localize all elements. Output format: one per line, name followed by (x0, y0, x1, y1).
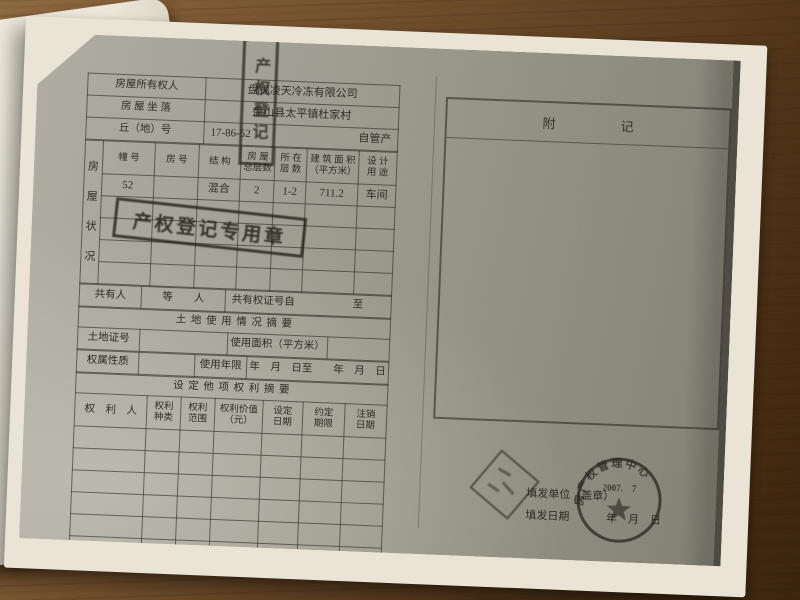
col-right-holder: 权 利 人 (74, 393, 147, 429)
svg-text:房产权管理中心: 房产权管理中心 (572, 454, 654, 509)
col-set-date: 设定 日期 (262, 400, 303, 435)
other-rights-table: 设 定 他 项 权 利 摘 要 权 利 人 权利 种类 权利 范围 权利价值 （… (68, 372, 388, 570)
photocopy-area: 房屋所有权人 盘锦凌天冷冻有限公司 房 屋 坐 落 盘山县太平镇杜家村 丘（地）… (19, 33, 741, 567)
designed-use-value: 车间 (357, 184, 396, 208)
coowner-cert-to: 至 (352, 300, 363, 312)
empty-cell (341, 481, 384, 505)
col-floor-located: 所 在 层 数 (274, 148, 307, 182)
use-area-value (327, 337, 390, 361)
certificate-page: 房屋所有权人 盘锦凌天冷冻有限公司 房 屋 坐 落 盘山县太平镇杜家村 丘（地）… (4, 16, 768, 597)
page-fold-line (418, 76, 437, 528)
col-right-value: 权利价值 （元） (214, 398, 263, 433)
land-cert-label: 土地证号 (77, 327, 140, 351)
empty-cell (303, 248, 356, 272)
stamp-stroke (502, 481, 515, 495)
empty-cell (354, 272, 393, 296)
empty-cell (258, 499, 299, 523)
empty-cell (69, 536, 142, 561)
empty-cell (143, 495, 178, 518)
empty-cell (212, 453, 261, 477)
empty-cell (211, 475, 260, 499)
total-floors-value: 2 (239, 179, 274, 202)
empty-cell (300, 457, 343, 481)
room-no-value (153, 176, 198, 200)
empty-cell (150, 264, 195, 288)
empty-cell (98, 262, 151, 286)
ownership-nature-label: 权属性质 (76, 350, 139, 374)
col-designed-use: 设 计 用 途 (358, 151, 397, 185)
coowner-label: 共有人 (79, 284, 142, 308)
empty-cell (175, 540, 210, 563)
empty-cell (339, 525, 382, 549)
vertical-seal-glyphs: 产权登记 (245, 57, 273, 146)
empty-cell (178, 452, 213, 475)
empty-cell (210, 519, 259, 543)
building-no-value: 52 (101, 174, 154, 198)
issue-date-label: 填发日期 (525, 509, 569, 523)
empty-cell (71, 470, 144, 495)
ownership-nature-value (138, 352, 195, 376)
empty-cell (70, 514, 143, 539)
empty-cell (340, 503, 383, 527)
coowner-count-cell: 等 人 (141, 286, 226, 311)
empty-cell (339, 547, 382, 571)
empty-cell (301, 435, 344, 459)
empty-cell (343, 437, 386, 461)
empty-cell (144, 451, 179, 474)
empty-cell (143, 473, 178, 496)
col-structure: 结 构 (198, 145, 241, 180)
empty-cell (99, 240, 152, 264)
seal-star-icon (606, 497, 632, 521)
empty-cell (177, 474, 212, 497)
empty-cell (356, 206, 395, 230)
empty-cell (176, 518, 211, 541)
empty-cell (73, 426, 146, 451)
empty-cell (213, 431, 262, 455)
vertical-seal-stamp: 产权登记 (238, 37, 279, 166)
empty-cell (71, 492, 144, 517)
seal-arc-text: 房产权管理中心 (572, 454, 654, 509)
col-cancel-date: 注销 日期 (344, 404, 387, 439)
empty-cell (270, 269, 303, 292)
use-term-label: 使用年限 (194, 355, 247, 379)
stamp-stroke (487, 483, 499, 493)
empty-cell (194, 265, 237, 289)
empty-cell (141, 539, 176, 562)
coowner-cert-from: 共有权证号自 (231, 295, 294, 310)
empty-cell (259, 477, 300, 501)
empty-cell (145, 429, 180, 452)
property-nature-note: 自管产 (358, 133, 391, 147)
empty-cell (142, 517, 177, 540)
col-right-type: 权利 种类 (146, 396, 181, 430)
appendix-box: 附 记 (433, 97, 732, 430)
empty-cell (72, 448, 145, 473)
empty-cell (355, 228, 394, 252)
empty-cell (299, 479, 342, 503)
col-building-no: 幢 号 (102, 141, 155, 176)
empty-cell (261, 433, 302, 457)
seal-date-text: 2007. 7 (602, 483, 637, 494)
empty-cell (210, 497, 259, 521)
col-right-scope: 权利 范围 (180, 397, 215, 431)
empty-cell (176, 496, 211, 519)
empty-cell (298, 501, 341, 525)
empty-cell (209, 541, 258, 565)
land-cert-value (139, 329, 228, 355)
empty-cell (179, 430, 214, 453)
empty-cell (303, 226, 356, 250)
empty-cell (297, 545, 340, 569)
empty-cell (258, 521, 299, 545)
empty-cell (342, 459, 385, 483)
stamp-stroke (498, 467, 512, 477)
floor-area-value: 711.2 (305, 182, 358, 206)
col-room-no: 房 号 (154, 143, 199, 178)
col-floor-area: 建 筑 面 积 （平方米） (306, 149, 359, 184)
empty-cell (257, 543, 298, 567)
empty-cell (354, 250, 393, 274)
col-agreed-term: 约定 期限 (302, 402, 345, 437)
appendix-title: 附 记 (446, 99, 729, 149)
empty-cell (304, 204, 357, 228)
registration-form: 房屋所有权人 盘锦凌天冷冻有限公司 房 屋 坐 落 盘山县太平镇杜家村 丘（地）… (68, 73, 399, 571)
photo-scene: 房屋所有权人 盘锦凌天冷冻有限公司 房 屋 坐 落 盘山县太平镇杜家村 丘（地）… (0, 0, 800, 600)
floor-located-value: 1-2 (273, 181, 306, 204)
empty-cell (302, 270, 355, 294)
structure-value: 混合 (197, 178, 240, 202)
empty-cell (297, 523, 340, 547)
empty-cell (236, 267, 271, 290)
round-official-seal: 房产权管理中心 2007. 7 (572, 453, 666, 547)
empty-cell (260, 455, 301, 479)
